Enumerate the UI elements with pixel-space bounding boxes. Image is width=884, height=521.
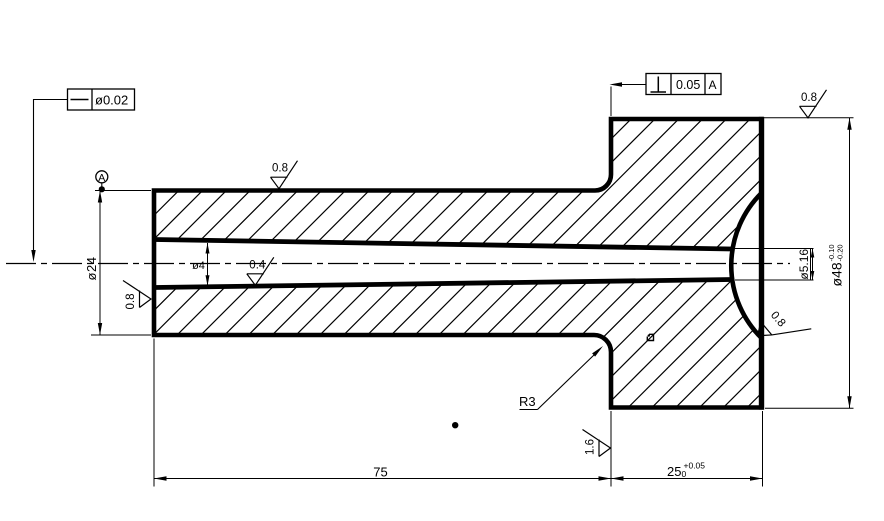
svg-text:ø48: ø48 bbox=[829, 262, 845, 286]
svg-text:ø0.02: ø0.02 bbox=[95, 93, 128, 108]
svg-text:0.8: 0.8 bbox=[801, 92, 817, 104]
svg-text:0: 0 bbox=[682, 469, 687, 479]
svg-text:A: A bbox=[709, 78, 717, 92]
svg-text:0.8: 0.8 bbox=[272, 163, 288, 175]
svg-text:ø24: ø24 bbox=[84, 257, 99, 281]
svg-text:A: A bbox=[98, 172, 105, 184]
svg-text:ø5.16: ø5.16 bbox=[797, 249, 811, 280]
svg-text:75: 75 bbox=[373, 465, 387, 480]
svg-text:0.8: 0.8 bbox=[125, 294, 137, 310]
svg-text:+0.05: +0.05 bbox=[684, 461, 706, 471]
svg-text:R3: R3 bbox=[519, 394, 536, 409]
svg-text:-0.20: -0.20 bbox=[836, 244, 845, 261]
svg-text:ø4: ø4 bbox=[192, 260, 205, 272]
svg-text:25: 25 bbox=[667, 464, 681, 479]
svg-text:0.05: 0.05 bbox=[676, 78, 700, 92]
svg-text:1.6: 1.6 bbox=[585, 439, 597, 455]
svg-text:0.4: 0.4 bbox=[249, 259, 266, 271]
